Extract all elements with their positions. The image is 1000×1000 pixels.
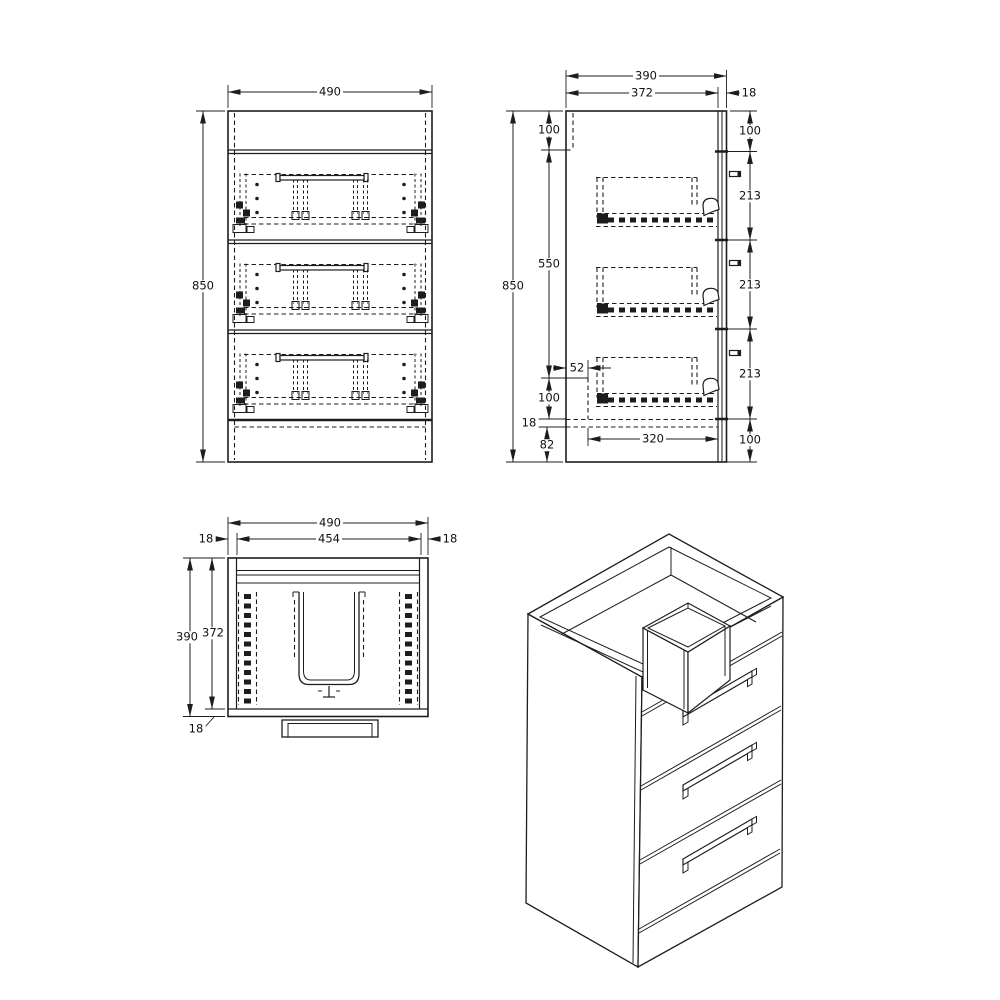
dim-side-height: 850 bbox=[500, 280, 526, 292]
dim-side-drawer-2: 213 bbox=[737, 279, 763, 291]
dim-side-front-panel: 18 bbox=[740, 87, 759, 99]
dim-plan-right-wall: 18 bbox=[441, 533, 460, 545]
dim-side-runner: 320 bbox=[640, 433, 666, 445]
dim-plan-depth: 390 bbox=[174, 631, 200, 643]
dim-side-carcass-depth: 372 bbox=[629, 87, 655, 99]
dim-plan-carcass-depth: 372 bbox=[200, 627, 226, 639]
dim-side-mid: 550 bbox=[536, 258, 562, 270]
dim-side-depth: 390 bbox=[633, 70, 659, 82]
front-elevation-view bbox=[196, 85, 432, 462]
dim-side-back-rail: 100 bbox=[536, 124, 562, 136]
dim-side-top-gap: 100 bbox=[737, 125, 763, 137]
dim-side-above-bottom: 100 bbox=[536, 392, 562, 404]
dim-side-drawer-3: 213 bbox=[737, 368, 763, 380]
plan-anchor-symbol bbox=[318, 686, 340, 697]
dim-front-height: 850 bbox=[190, 280, 216, 292]
dim-plan-left-wall: 18 bbox=[197, 533, 216, 545]
dim-plan-inner-width: 454 bbox=[316, 533, 342, 545]
dim-plan-front-panel: 18 bbox=[187, 723, 206, 735]
isometric-view bbox=[526, 534, 783, 967]
dim-plan-width: 490 bbox=[317, 517, 343, 529]
dim-side-drawer-offset: 52 bbox=[568, 362, 587, 374]
dim-side-plinth: 82 bbox=[538, 439, 557, 451]
dim-side-bottom-gap: 100 bbox=[737, 434, 763, 446]
dim-side-drawer-1: 213 bbox=[737, 190, 763, 202]
technical-drawing-canvas bbox=[0, 0, 1000, 1000]
vanity-unit-technical-drawing: 490 850 390 372 18 850 100 550 52 100 18… bbox=[0, 0, 1000, 1000]
dim-side-bottom-panel: 18 bbox=[520, 417, 539, 429]
dim-front-width: 490 bbox=[317, 86, 343, 98]
